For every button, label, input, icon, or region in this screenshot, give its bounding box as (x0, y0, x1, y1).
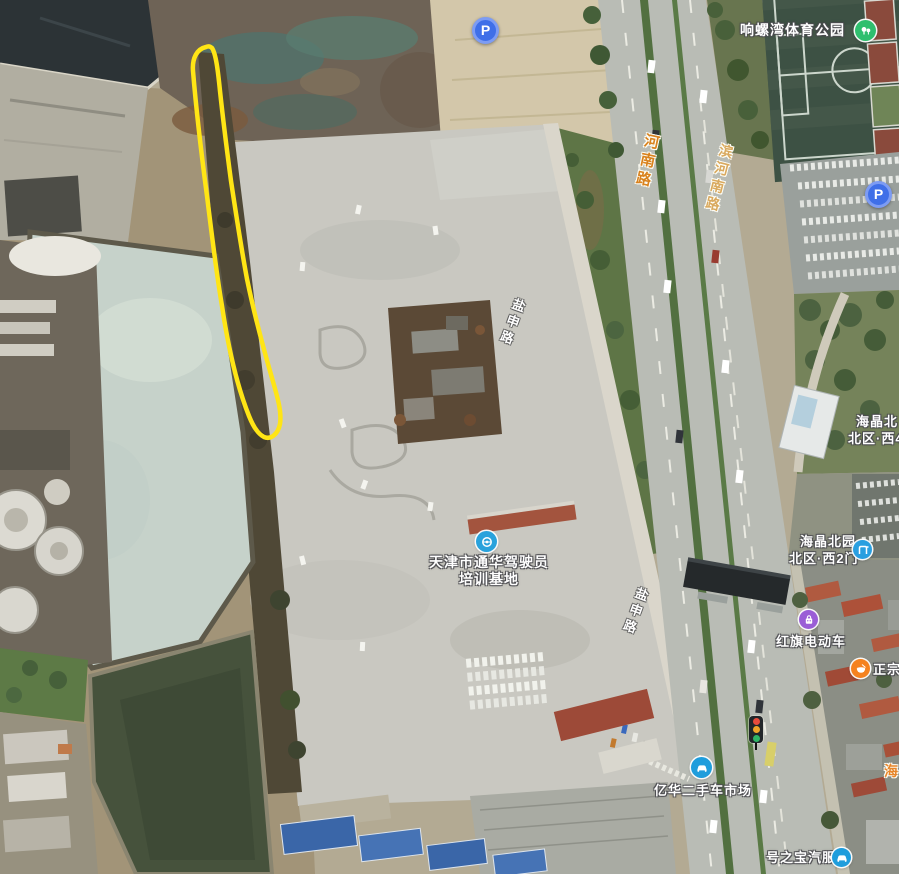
poi-label-haozhibao[interactable]: 号之宝汽服 (766, 849, 836, 866)
car-icon[interactable] (691, 757, 712, 778)
traffic-light-red (753, 718, 760, 725)
poi-label-haijing-west4-line1[interactable]: 海晶北 (856, 413, 898, 430)
rubble-field (148, 0, 468, 152)
poi-label-haijing-west4-line2[interactable]: 北区·西4 (848, 430, 899, 447)
shop-bag-icon[interactable] (799, 610, 818, 629)
poi-label-driving-school[interactable]: 天津市通华驾驶员 培训基地 (399, 554, 579, 588)
traffic-light-stem (755, 743, 757, 750)
poi-label-line2: 培训基地 (399, 571, 579, 588)
poi-label-sports-park[interactable]: 响螺湾体育公园 (740, 22, 845, 39)
parking-lot-right (780, 152, 899, 294)
poi-label-haijing-west2-line1[interactable]: 海晶北园 (800, 533, 856, 550)
poi-label-haijing-west2-line2[interactable]: 北区·西2门 (789, 550, 859, 567)
gate-icon[interactable] (853, 540, 872, 559)
road-label-hai-partial: 海 (884, 763, 899, 780)
map-viewport[interactable]: 响螺湾体育公园 P P 河南路 滨河南路 盐申路 盐申路 海 天津市通华驾驶员 … (0, 0, 899, 874)
food-icon[interactable] (851, 659, 870, 678)
parking-pin[interactable]: P (865, 181, 892, 208)
parking-pin[interactable]: P (472, 17, 499, 44)
industrial-left (0, 236, 112, 674)
traffic-light-green (753, 735, 760, 742)
park-icon[interactable] (855, 20, 876, 41)
buildings-bottom-left (0, 712, 98, 874)
lawn-bottom-left (0, 648, 88, 722)
traffic-light-yellow (753, 726, 760, 733)
parking-letter: P (868, 184, 889, 205)
car-icon[interactable] (832, 848, 851, 867)
poi-label-hongqi[interactable]: 红旗电动车 (776, 633, 846, 650)
poi-label-zhengzong[interactable]: 正宗 (873, 661, 899, 678)
poi-label-line1: 天津市通华驾驶员 (399, 554, 579, 571)
canal (90, 632, 272, 874)
traffic-light-icon (749, 716, 763, 743)
satellite-imagery (0, 0, 899, 874)
poi-label-yihua[interactable]: 亿华二手车市场 (654, 782, 752, 799)
driving-school-icon[interactable] (476, 531, 497, 552)
parking-letter: P (475, 20, 496, 41)
